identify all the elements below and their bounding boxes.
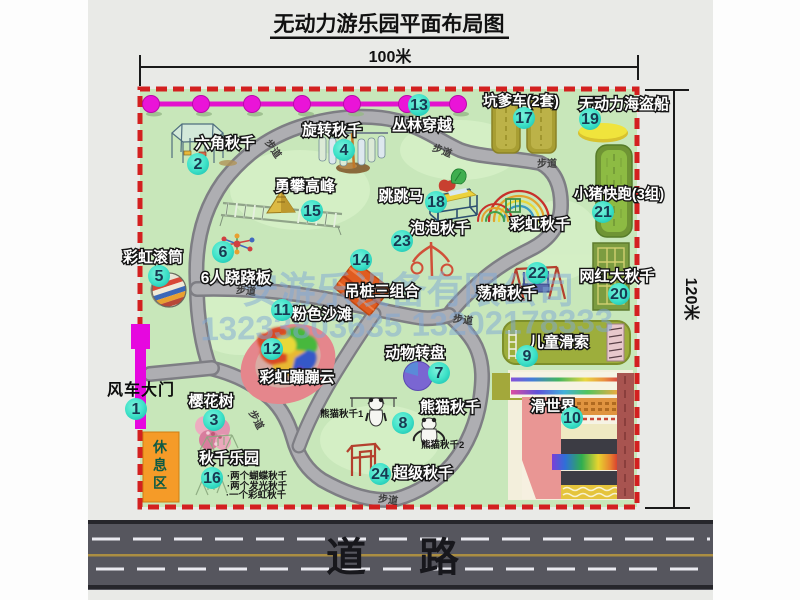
- svg-text:彩虹蹦蹦云: 彩虹蹦蹦云: [258, 368, 334, 386]
- svg-text:动物转盘: 动物转盘: [385, 344, 445, 362]
- svg-text:粉色沙滩: 粉色沙滩: [292, 305, 352, 323]
- svg-text:21: 21: [594, 204, 612, 221]
- svg-text:12: 12: [263, 341, 281, 358]
- svg-text:步道: 步道: [537, 157, 557, 170]
- svg-text:彩虹滚筒: 彩虹滚筒: [122, 248, 183, 266]
- svg-text:超级秋千: 超级秋千: [392, 464, 453, 482]
- svg-text:秋千乐园: 秋千乐园: [199, 449, 259, 467]
- svg-text:勇攀高峰: 勇攀高峰: [275, 177, 336, 195]
- svg-text:吊桩三组合: 吊桩三组合: [344, 282, 420, 300]
- svg-text:熊猫秋千1: 熊猫秋千1: [320, 408, 364, 420]
- svg-text:风车大门: 风车大门: [107, 380, 175, 399]
- svg-text:9: 9: [523, 348, 532, 365]
- svg-text:6: 6: [219, 244, 228, 261]
- svg-text:24: 24: [371, 466, 389, 483]
- svg-text:18: 18: [427, 194, 445, 211]
- svg-text:23: 23: [393, 233, 411, 250]
- svg-text:11: 11: [274, 302, 291, 319]
- svg-text:路: 路: [419, 536, 460, 580]
- svg-text:区: 区: [153, 475, 167, 491]
- svg-text:15: 15: [303, 203, 321, 220]
- svg-text:休: 休: [152, 439, 168, 455]
- svg-text:4: 4: [340, 142, 349, 159]
- svg-text:17: 17: [515, 110, 533, 127]
- svg-text:樱花树: 樱花树: [188, 392, 233, 410]
- svg-text:10: 10: [563, 410, 581, 427]
- svg-text:·一个彩虹秋千: ·一个彩虹秋千: [226, 489, 287, 501]
- svg-text:16: 16: [203, 470, 221, 487]
- svg-text:5: 5: [155, 268, 164, 285]
- svg-text:22: 22: [528, 265, 546, 282]
- svg-text:熊猫秋千2: 熊猫秋千2: [421, 439, 464, 451]
- svg-text:网红大秋千: 网红大秋千: [579, 267, 654, 285]
- svg-text:泡泡秋千: 泡泡秋千: [410, 219, 470, 237]
- svg-text:120米: 120米: [682, 278, 701, 322]
- svg-text:7: 7: [435, 365, 444, 382]
- svg-text:1: 1: [132, 401, 141, 418]
- svg-text:六角秋千: 六角秋千: [195, 134, 255, 152]
- svg-text:14: 14: [352, 252, 370, 269]
- svg-text:小猪快跑(3组): 小猪快跑(3组): [574, 185, 664, 203]
- svg-text:彩虹秋千: 彩虹秋千: [509, 215, 570, 233]
- svg-text:旋转秋千: 旋转秋千: [301, 121, 362, 139]
- svg-text:2: 2: [194, 156, 203, 173]
- svg-text:3: 3: [210, 412, 219, 429]
- svg-text:8: 8: [399, 415, 408, 432]
- svg-text:荡椅秋千: 荡椅秋千: [477, 284, 537, 302]
- svg-text:跳跳马: 跳跳马: [378, 187, 423, 205]
- svg-text:熊猫秋千: 熊猫秋千: [420, 398, 480, 416]
- svg-text:儿童滑索: 儿童滑索: [528, 333, 589, 351]
- svg-text:坑爹车(2套): 坑爹车(2套): [483, 92, 559, 110]
- svg-text:道: 道: [326, 536, 366, 580]
- svg-text:13: 13: [410, 97, 428, 114]
- svg-text:息: 息: [153, 457, 167, 473]
- svg-text:20: 20: [610, 286, 628, 303]
- svg-text:19: 19: [581, 111, 599, 128]
- svg-text:丛林穿越: 丛林穿越: [392, 116, 453, 134]
- svg-text:100米: 100米: [369, 47, 413, 66]
- svg-text:无动力游乐园平面布局图: 无动力游乐园平面布局图: [274, 12, 505, 36]
